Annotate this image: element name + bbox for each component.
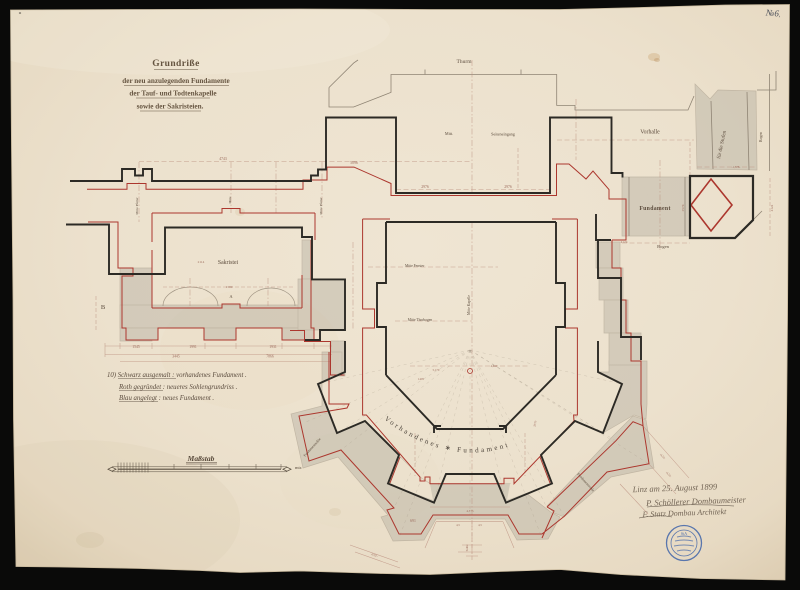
svg-text:2976: 2976 — [504, 185, 512, 189]
svg-text:Sakristei: Sakristei — [218, 260, 239, 266]
svg-text:Sohle: Sohle — [465, 544, 469, 552]
svg-text:Mitte Pfeiler: Mitte Pfeiler — [135, 197, 139, 215]
svg-text:1545: 1545 — [132, 345, 140, 349]
svg-text:1399: 1399 — [226, 285, 233, 289]
svg-text:Mitte Kapelle: Mitte Kapelle — [467, 295, 471, 315]
svg-text:2574: 2574 — [681, 204, 685, 211]
svg-text:Roth gegründet : neueres Sohl: Roth gegründet : neueres Sohlengrundriss… — [118, 384, 238, 391]
svg-text:Grundriße: Grundriße — [152, 59, 199, 69]
svg-text:№6,: №6, — [765, 7, 782, 18]
svg-text:Bogen: Bogen — [657, 244, 669, 249]
svg-text:2976: 2976 — [421, 185, 429, 189]
svg-text:Mitte Pfeiler: Mitte Pfeiler — [319, 197, 323, 215]
svg-text:Bogen: Bogen — [759, 132, 763, 142]
svg-text:Fundament: Fundament — [639, 206, 670, 212]
svg-text:Thurm: Thurm — [457, 59, 473, 65]
svg-text:1931: 1931 — [269, 345, 277, 349]
svg-text:10) Schwarz ausgemalt : vorhan: 10) Schwarz ausgemalt : vorhandenes Fund… — [107, 372, 247, 379]
svg-text:der neu anzulegenden Fundament: der neu anzulegenden Fundamente — [122, 77, 230, 85]
svg-text:der Tauf- und Todtenkapelle: der Tauf- und Todtenkapelle — [129, 90, 216, 98]
svg-text:Mitte: Mitte — [228, 196, 232, 203]
svg-text:B: B — [101, 304, 106, 311]
svg-text:4743: 4743 — [219, 157, 227, 161]
svg-text:4124: 4124 — [770, 204, 774, 211]
svg-text:Mitte Fenster: Mitte Fenster — [405, 264, 425, 268]
svg-text:Vorhalle: Vorhalle — [640, 130, 660, 136]
svg-text:Blau angelegt : neues Fundame: Blau angelegt : neues Fundament . — [119, 395, 214, 402]
svg-text:StA: StA — [681, 531, 687, 536]
svg-text:2114: 2114 — [198, 260, 205, 264]
svg-text:4124: 4124 — [621, 240, 628, 244]
svg-text:5096: 5096 — [350, 161, 358, 165]
svg-text:691: 691 — [410, 519, 416, 523]
svg-text:mtr.: mtr. — [295, 465, 302, 470]
svg-text:Maßstab: Maßstab — [187, 454, 215, 463]
svg-text:Mitte Thorbogen: Mitte Thorbogen — [408, 318, 433, 322]
svg-text:7866: 7866 — [266, 355, 274, 359]
svg-text:1405: 1405 — [418, 377, 425, 381]
svg-text:1991: 1991 — [189, 345, 197, 349]
svg-text:3445: 3445 — [172, 355, 180, 359]
svg-text:Seiteneingang: Seiteneingang — [491, 132, 516, 137]
svg-text:Mitt.: Mitt. — [445, 131, 453, 136]
svg-text:sowie der Sakristeien.: sowie der Sakristeien. — [137, 103, 204, 111]
